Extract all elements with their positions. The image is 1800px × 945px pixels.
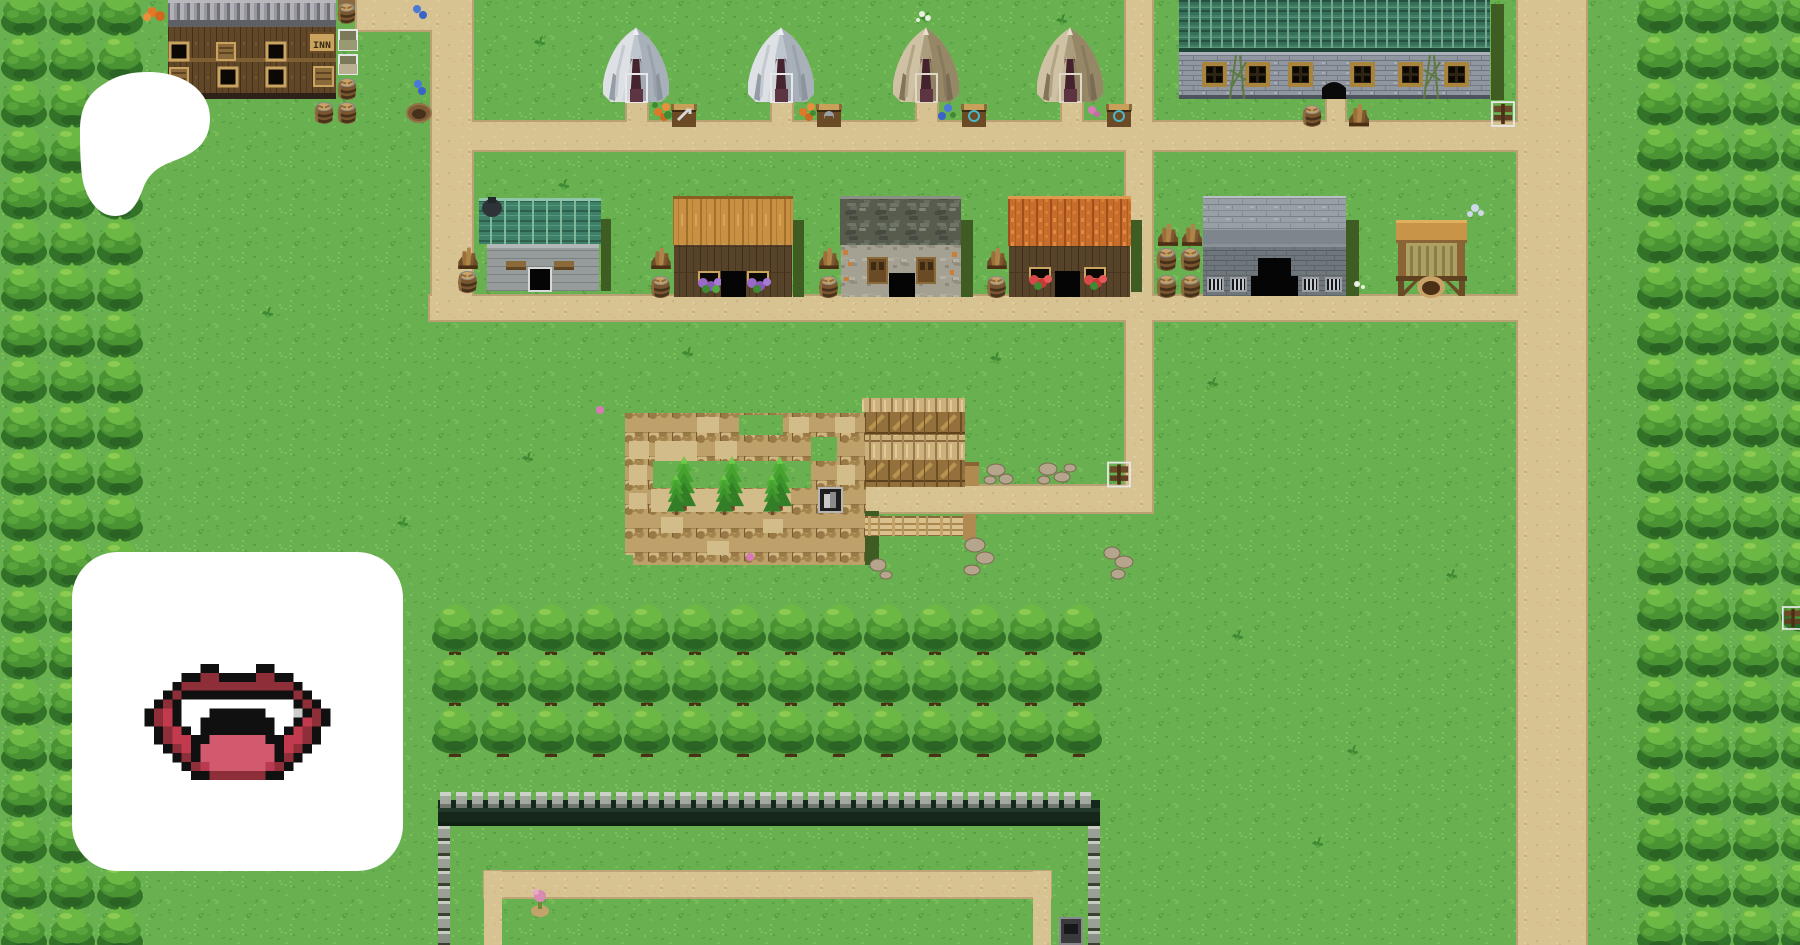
svg-text:INN: INN — [313, 41, 331, 52]
